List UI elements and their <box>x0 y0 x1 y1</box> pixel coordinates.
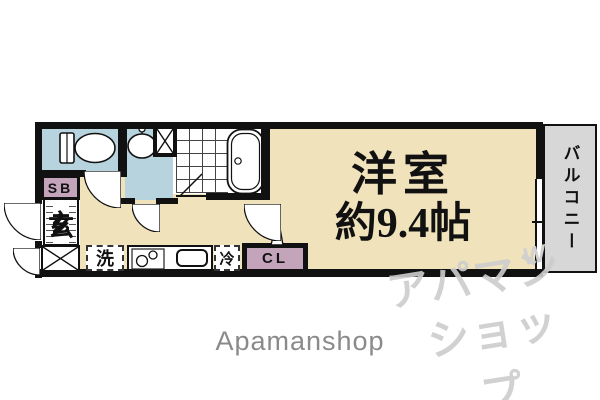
floor-plan-image: 洗 冷 SB CL 玄 玄 バルコニー 洋室 約9.4帖 <box>0 0 600 400</box>
toilet-door-arc <box>84 171 121 208</box>
balcony: バルコニー <box>543 124 597 273</box>
entrance-door-arc <box>4 203 41 240</box>
fridge-label: 冷 <box>219 248 234 269</box>
agency-caption: Apamanshop <box>0 326 600 357</box>
refrigerator-space: 冷 <box>214 245 240 271</box>
wall <box>35 122 543 129</box>
washroom-door-arc <box>132 204 160 232</box>
main-room-size: 約9.4帖 <box>335 200 472 248</box>
entrance-kanji: 玄 <box>48 207 74 244</box>
wall <box>176 195 208 197</box>
shoe-box-label: SB <box>44 178 77 197</box>
wall <box>206 193 263 200</box>
entrance-door-arc <box>13 248 40 275</box>
balcony-label: バルコニー <box>558 144 583 254</box>
kitchen-sink-icon <box>176 249 208 267</box>
bathtub-icon <box>226 128 266 196</box>
toilet-icon <box>55 130 120 168</box>
wall <box>118 129 127 177</box>
wall <box>261 122 270 200</box>
stove-icon <box>131 248 165 270</box>
porch-x-icon <box>43 247 78 270</box>
main-room-label: 洋室 約9.4帖 <box>270 138 536 260</box>
wall <box>536 122 543 179</box>
washing-machine-space: 洗 <box>86 245 124 271</box>
washer-label: 洗 <box>96 245 114 271</box>
pipe-space-x-icon <box>157 129 173 153</box>
main-room-name: 洋室 <box>351 150 455 201</box>
